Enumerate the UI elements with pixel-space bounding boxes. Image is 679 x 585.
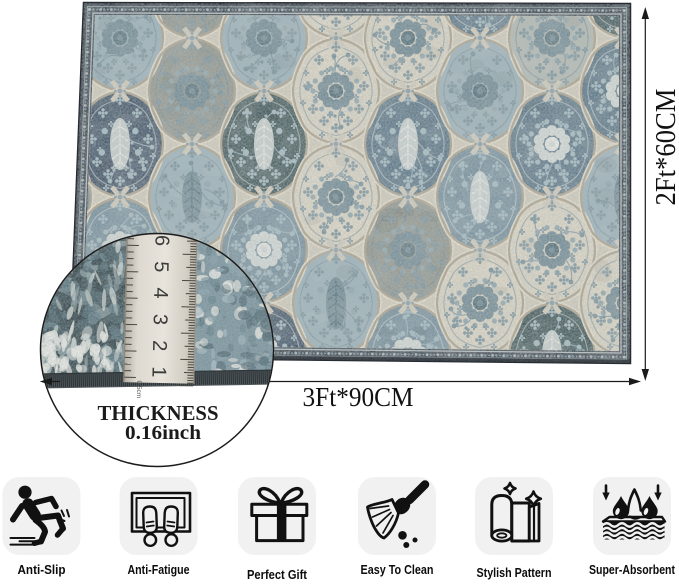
svg-text:Perfect Gift: Perfect Gift: [247, 568, 308, 580]
svg-text:1: 1: [147, 366, 169, 378]
svg-text:3Ft*90CM: 3Ft*90CM: [303, 382, 414, 412]
svg-text:4: 4: [149, 287, 171, 299]
svg-text:5: 5: [150, 261, 172, 273]
svg-text:Anti-Slip: Anti-Slip: [18, 563, 66, 577]
svg-text:0.5cm: 0.5cm: [135, 380, 142, 398]
svg-text:3: 3: [149, 314, 171, 326]
svg-text:6: 6: [150, 235, 172, 247]
svg-text:2Ft*60CM: 2Ft*60CM: [651, 88, 679, 205]
svg-text:Super-Absorbent: Super-Absorbent: [589, 563, 676, 577]
svg-text:Stylish Pattern: Stylish Pattern: [477, 566, 552, 580]
svg-text:Anti-Fatigue: Anti-Fatigue: [128, 563, 190, 577]
svg-text:0.16inch: 0.16inch: [125, 422, 201, 444]
svg-text:2: 2: [148, 340, 170, 352]
svg-text:Easy To Clean: Easy To Clean: [361, 563, 434, 577]
